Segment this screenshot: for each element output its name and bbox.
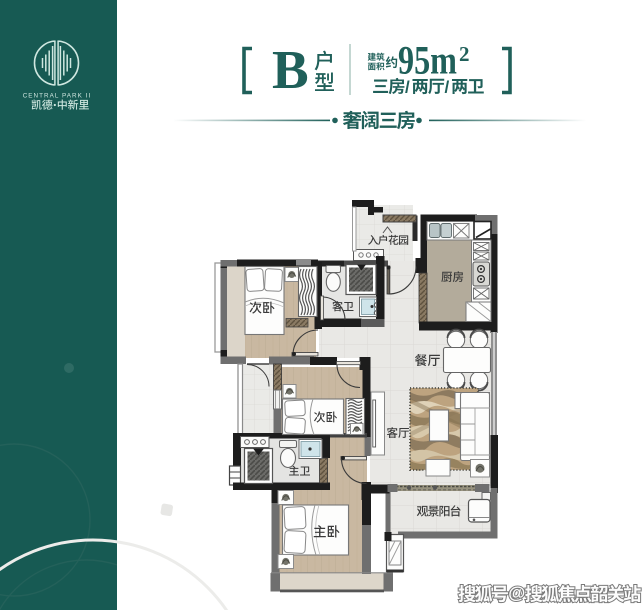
svg-text:/: / — [445, 78, 450, 97]
svg-text:B: B — [272, 39, 309, 100]
svg-text:@: @ — [508, 583, 525, 603]
svg-text:/: / — [405, 78, 410, 97]
svg-text:2: 2 — [459, 42, 470, 66]
svg-text:CENTRAL PARK II: CENTRAL PARK II — [23, 93, 92, 100]
svg-text:95m: 95m — [398, 38, 457, 83]
